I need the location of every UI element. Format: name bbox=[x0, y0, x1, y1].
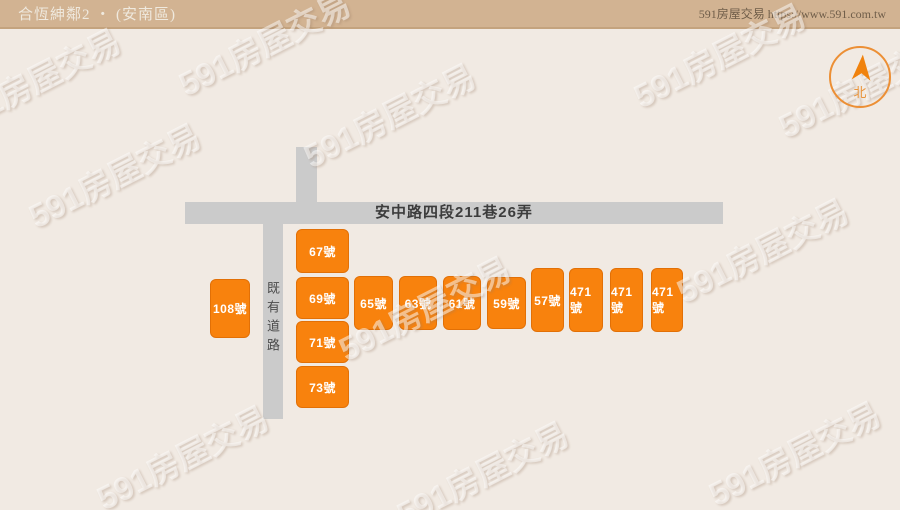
watermark-text: 591房屋交易 bbox=[0, 15, 128, 143]
watermark-text: 591房屋交易 bbox=[699, 388, 887, 510]
compass: 北 bbox=[829, 46, 891, 108]
site-url: 591房屋交易 https://www.591.com.tw bbox=[699, 5, 900, 22]
north-arrow-icon bbox=[844, 52, 878, 86]
watermark-text: 591房屋交易 bbox=[19, 110, 207, 238]
compass-north-label: 北 bbox=[831, 82, 889, 101]
building-block-471-a: 471號 bbox=[569, 268, 603, 332]
watermark-text: 591房屋交易 bbox=[387, 408, 575, 510]
building-block-65: 65號 bbox=[354, 276, 393, 330]
existing-road-label: 既有道路 bbox=[263, 281, 283, 357]
page-title: 合恆紳鄰2 ‧ (安南區) bbox=[0, 3, 176, 24]
building-block-57: 57號 bbox=[531, 268, 564, 332]
building-block-471-c: 471號 bbox=[651, 268, 683, 332]
building-block-471-b: 471號 bbox=[610, 268, 643, 332]
building-block-73: 73號 bbox=[296, 366, 349, 408]
building-block-69: 69號 bbox=[296, 277, 349, 319]
building-block-63: 63號 bbox=[399, 276, 437, 330]
header-bar: 合恆紳鄰2 ‧ (安南區) 591房屋交易 https://www.591.co… bbox=[0, 0, 900, 29]
watermark-text: 591房屋交易 bbox=[87, 392, 275, 510]
road-vertical-north-stub bbox=[296, 147, 317, 203]
watermark-text: 591房屋交易 bbox=[294, 50, 482, 178]
building-block-61: 61號 bbox=[443, 276, 481, 330]
building-block-108: 108號 bbox=[210, 279, 250, 338]
main-road-label: 安中路四段211巷26弄 bbox=[185, 202, 723, 224]
building-block-67: 67號 bbox=[296, 229, 349, 273]
building-block-59: 59號 bbox=[487, 277, 526, 329]
building-block-71: 71號 bbox=[296, 321, 349, 363]
map-canvas: 合恆紳鄰2 ‧ (安南區) 591房屋交易 https://www.591.co… bbox=[0, 0, 900, 510]
